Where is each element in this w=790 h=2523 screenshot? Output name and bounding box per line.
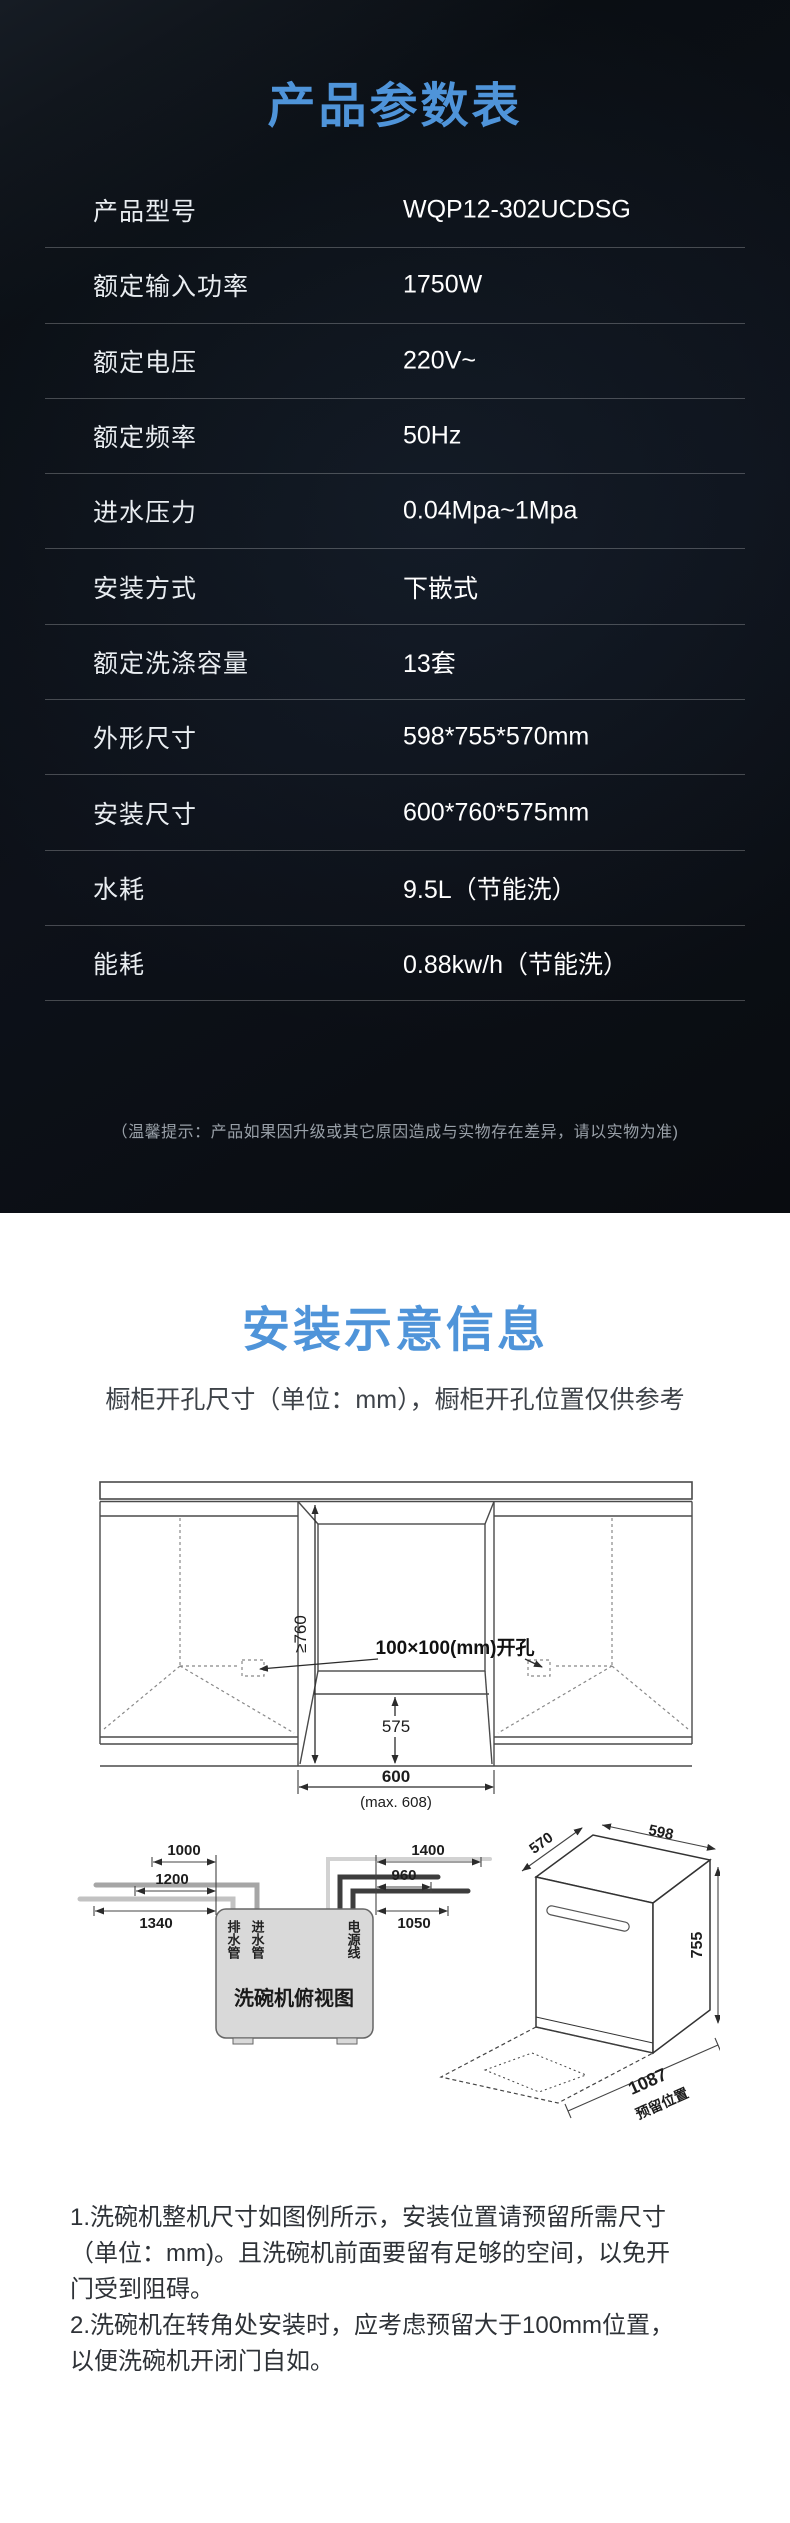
cabinet-cutout-diagram: ≥760 100×100(mm)开孔 575 600 (max. 608) [70,1476,720,1811]
spec-row-rated-voltage: 额定电压 220V~ [45,324,745,399]
inlet-hose-label: 进水管 [250,1920,265,1960]
width-dim-label: 600 [382,1767,410,1786]
spec-section: 产品参数表 产品型号 WQP12-302UCDSG 额定输入功率 1750W 额… [0,0,790,1213]
hoses [80,1859,490,1911]
spec-row-outer-size: 外形尺寸 598*755*570mm [45,700,745,775]
spec-label: 安装尺寸 [93,795,197,831]
note-line: 1.洗碗机整机尺寸如图例所示，安装位置请预留所需尺寸 [70,2200,730,2236]
spec-value: 50Hz [403,422,461,451]
spec-value: 598*755*570mm [403,723,589,752]
spec-value: WQP12-302UCDSG [403,196,631,225]
spec-value: 13套 [403,644,456,680]
spec-value: 1750W [403,271,482,300]
right-dimensions [376,1855,481,1916]
spec-value: 0.04Mpa~1Mpa [403,497,577,526]
spec-row-model: 产品型号 WQP12-302UCDSG [45,173,745,248]
spec-value: 600*760*575mm [403,798,589,827]
spec-row-rated-frequency: 额定频率 50Hz [45,399,745,474]
spec-label: 额定输入功率 [93,267,249,303]
height-dim-label: ≥760 [291,1615,310,1653]
note-line: （单位：mm)。且洗碗机前面要留有足够的空间，以免开 [70,2236,730,2272]
spec-value: 0.88kw/h（节能洗） [403,945,628,981]
machine-depth-label: 570 [526,1829,556,1857]
height-dimension: ≥760 [291,1505,315,1763]
machine-width-label: 598 [647,1822,675,1844]
spec-row-energy-consumption: 能耗 0.88kw/h（节能洗） [45,926,745,1001]
drain-hose-label: 排水管 [226,1919,241,1960]
spec-row-water-pressure: 进水压力 0.04Mpa~1Mpa [45,474,745,549]
top-view-title: 洗碗机俯视图 [234,1986,354,2010]
spec-label: 产品型号 [93,192,197,228]
spec-section-title: 产品参数表 [0,66,790,136]
spec-label: 外形尺寸 [93,719,197,755]
installation-clearance-diagram: 排水管 进水管 电源线 洗碗机俯视图 1000 1200 1340 1400 9… [70,1815,720,2145]
install-notes: 1.洗碗机整机尺寸如图例所示，安装位置请预留所需尺寸 （单位：mm)。且洗碗机前… [70,2200,730,2380]
dim-1050: 1050 [397,1915,430,1932]
note-line: 以便洗碗机开闭门自如。 [70,2344,730,2380]
width-max-label: (max. 608) [360,1794,432,1811]
note-line: 2.洗碗机在转角处安装时，应考虑预留大于100mm位置， [70,2308,730,2344]
countertop [100,1482,692,1502]
install-subtitle: 橱柜开孔尺寸（单位：mm），橱柜开孔位置仅供参考 [0,1380,790,1416]
power-cord-label: 电源线 [346,1919,361,1960]
spec-label: 水耗 [93,870,145,906]
spec-row-water-consumption: 水耗 9.5L（节能洗） [45,851,745,926]
spec-row-install-size: 安装尺寸 600*760*575mm [45,775,745,850]
dishwasher-top-view: 排水管 进水管 电源线 洗碗机俯视图 [216,1909,373,2044]
disclaimer-note: （温馨提示：产品如果因升级或其它原因造成与实物存在差异，请以实物为准) [0,1118,790,1142]
spec-label: 额定洗涤容量 [93,644,249,680]
spec-row-capacity: 额定洗涤容量 13套 [45,625,745,700]
dim-960: 960 [391,1867,416,1884]
width-dimension: 600 (max. 608) [298,1767,494,1811]
cutout-label: 100×100(mm)开孔 [376,1637,535,1659]
spec-table: 产品型号 WQP12-302UCDSG 额定输入功率 1750W 额定电压 22… [45,173,745,1001]
depth-dim-label: 575 [382,1717,410,1736]
spec-row-rated-power: 额定输入功率 1750W [45,248,745,323]
dim-1200: 1200 [155,1871,188,1888]
spec-label: 安装方式 [93,569,197,605]
machine-height-label: 755 [689,1932,706,1959]
spec-label: 进水压力 [93,493,197,529]
spec-row-install-type: 安装方式 下嵌式 [45,549,745,624]
spec-value: 下嵌式 [403,569,478,605]
note-line: 门受到阻碍。 [70,2272,730,2308]
dishwasher-3d-view [536,1835,710,2053]
spec-label: 能耗 [93,945,145,981]
spec-label: 额定频率 [93,418,197,454]
cabinet-interior-dashed [104,1518,688,1733]
spec-value: 9.5L（节能洗） [403,870,577,906]
install-section-title: 安装示意信息 [0,1290,790,1360]
product-detail-page: 产品参数表 产品型号 WQP12-302UCDSG 额定输入功率 1750W 额… [0,0,790,2523]
spec-label: 额定电压 [93,343,197,379]
dim-1000: 1000 [167,1842,200,1859]
spec-value: 220V~ [403,346,476,375]
dim-1340: 1340 [139,1915,172,1932]
depth-dimension: 575 [377,1697,414,1763]
dim-1400: 1400 [411,1842,444,1859]
